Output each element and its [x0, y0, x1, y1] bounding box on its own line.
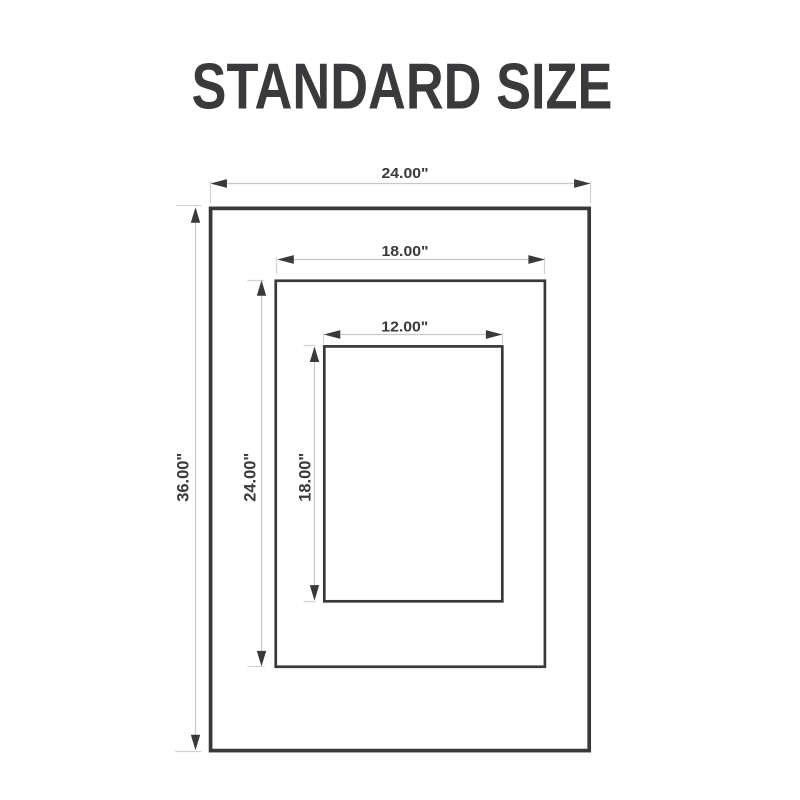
svg-text:24.00": 24.00" [241, 453, 260, 502]
svg-text:18.00": 18.00" [296, 453, 315, 502]
svg-text:36.00": 36.00" [174, 453, 193, 502]
svg-text:18.00": 18.00" [382, 244, 429, 260]
svg-text:STANDARD SIZE: STANDARD SIZE [192, 50, 613, 123]
svg-text:24.00": 24.00" [382, 166, 429, 182]
svg-text:12.00": 12.00" [381, 320, 428, 336]
